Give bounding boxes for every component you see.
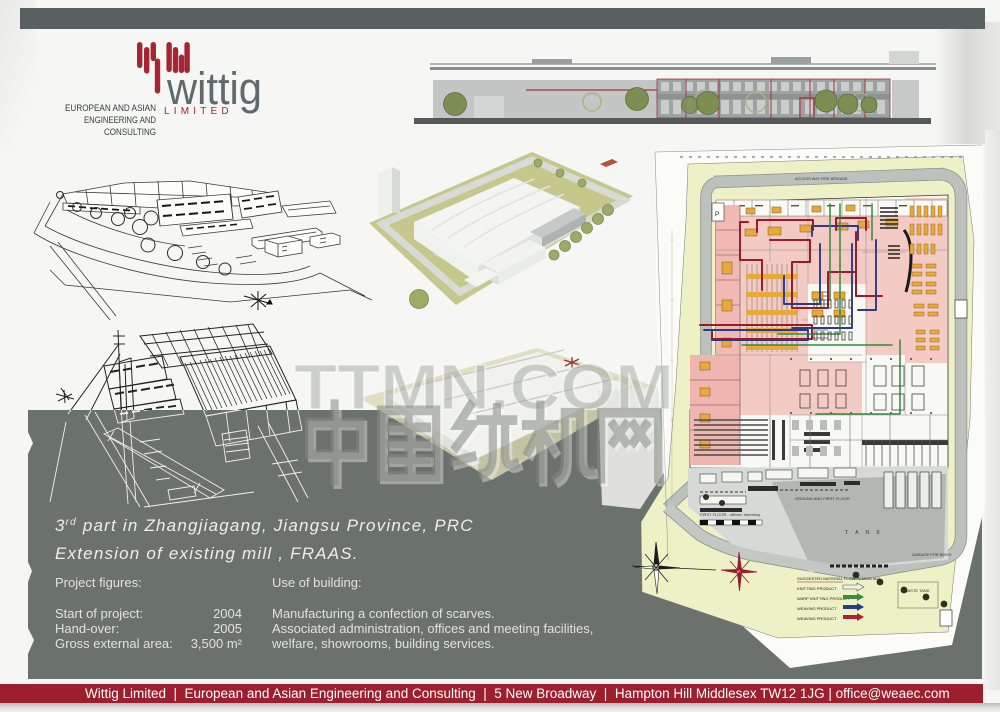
svg-text:FIRST FLOOR - offices, dormito: FIRST FLOOR - offices, dormitory — [700, 512, 760, 517]
svg-text:WEAVING PRODUCT: WEAVING PRODUCT — [797, 616, 837, 621]
svg-text:CONSULTING: CONSULTING — [104, 127, 156, 137]
svg-text:T A N K: T A N K — [845, 530, 883, 536]
svg-text:WARP KNITTING PRODUCT: WARP KNITTING PRODUCT — [797, 596, 850, 601]
svg-text:EUROPEAN AND ASIAN: EUROPEAN AND ASIAN — [65, 103, 156, 113]
svg-text:WASTE TANK: WASTE TANK — [904, 588, 930, 593]
svg-text:ENGINEERING AND: ENGINEERING AND — [84, 115, 156, 125]
svg-text:ACCESS WAY FIRE BRIGADE: ACCESS WAY FIRE BRIGADE — [795, 177, 848, 181]
svg-text:P: P — [715, 211, 719, 218]
svg-text:GARAGE FOR BIKES: GARAGE FOR BIKES — [912, 552, 952, 557]
svg-text:SUGGESTED MATERIAL FLOW IN MAI: SUGGESTED MATERIAL FLOW IN MAIN AIM — [797, 576, 880, 581]
svg-text:KNITTING PRODUCT: KNITTING PRODUCT — [797, 586, 837, 591]
svg-text:WEAVING PRODUCT: WEAVING PRODUCT — [797, 606, 837, 611]
svg-text:GROUND AND FIRST FLOOR: GROUND AND FIRST FLOOR — [795, 496, 850, 501]
svg-text:LIMITED: LIMITED — [164, 106, 233, 117]
